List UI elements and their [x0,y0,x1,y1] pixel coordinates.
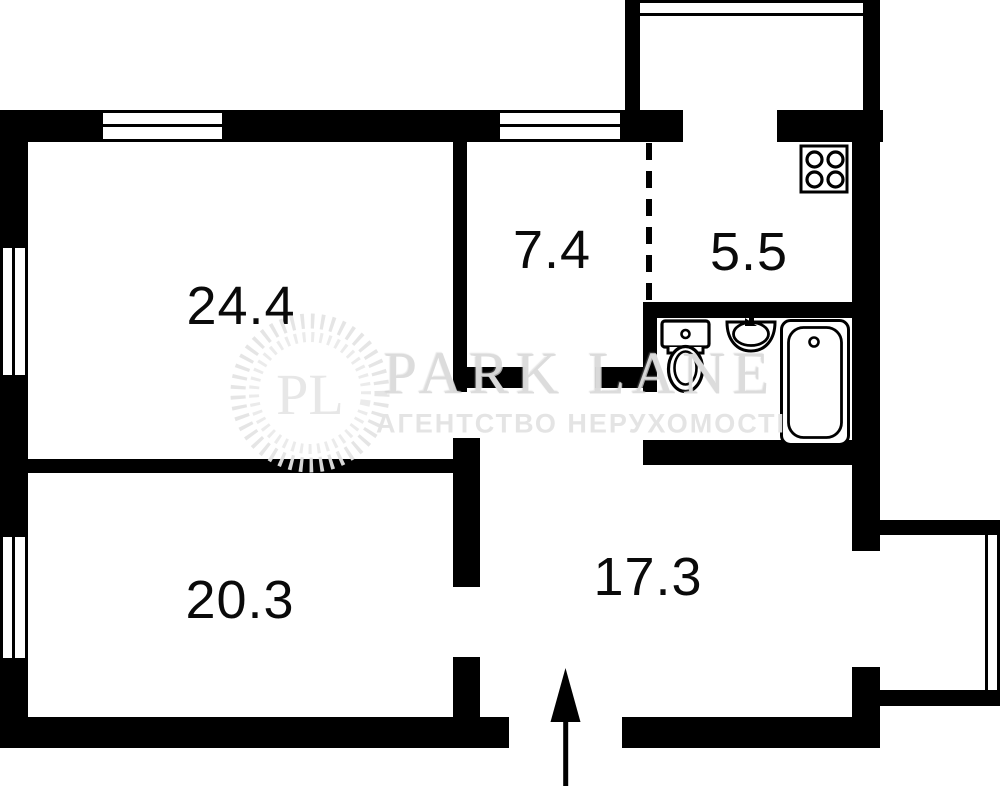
dashed-divider-line [646,143,652,302]
wall-right-balcony-top [880,520,1000,535]
room-label-bedroom: 20.3 [185,569,294,631]
balcony-top-glazing [640,0,863,16]
wall-living-bedroom-divider [28,459,480,473]
wall-right-balcony-bottom [880,690,1000,706]
watermark-initials: PL [276,362,344,427]
window-pane-line [12,537,15,658]
watermark-brand-text: PARK LANE [384,340,777,409]
sink-icon [725,318,777,356]
wall-balcony-right [863,0,880,112]
bathtub-icon [780,319,850,446]
toilet-icon [659,319,712,394]
wall-kitchen-bathroom [643,302,852,318]
entrance-arrow-icon [548,668,584,786]
window-top-living [103,110,222,142]
room-label-hall: 7.4 [513,219,591,281]
wall-hall-hallway-right [595,367,646,388]
stove-icon [799,144,849,194]
wall-living-hall-divider [453,142,467,392]
watermark-tagline-text: АГЕНТСТВО НЕРУХОМОСТІ [376,409,786,440]
wall-balcony-left [625,0,640,112]
window-pane-line [12,248,15,375]
wall-rooms-hallway-lower [453,657,480,717]
wall-bottom-right [622,717,880,748]
window-top-hall [500,110,620,142]
floor-plan: 24.4 7.4 5.5 20.3 17.3 [0,0,1000,786]
room-label-hallway: 17.3 [593,546,702,608]
wall-hall-hallway-left [467,367,526,388]
wall-right-lower [852,667,880,748]
room-label-living: 24.4 [186,275,295,337]
wall-bottom-left [0,717,509,748]
window-left-living [0,248,28,375]
window-pane-line [500,124,620,127]
room-label-kitchen: 5.5 [710,221,788,283]
wall-right-upper [852,110,880,551]
window-pane-line [103,124,222,127]
window-left-bedroom [0,537,28,658]
balcony-right-glazing [985,535,1000,690]
